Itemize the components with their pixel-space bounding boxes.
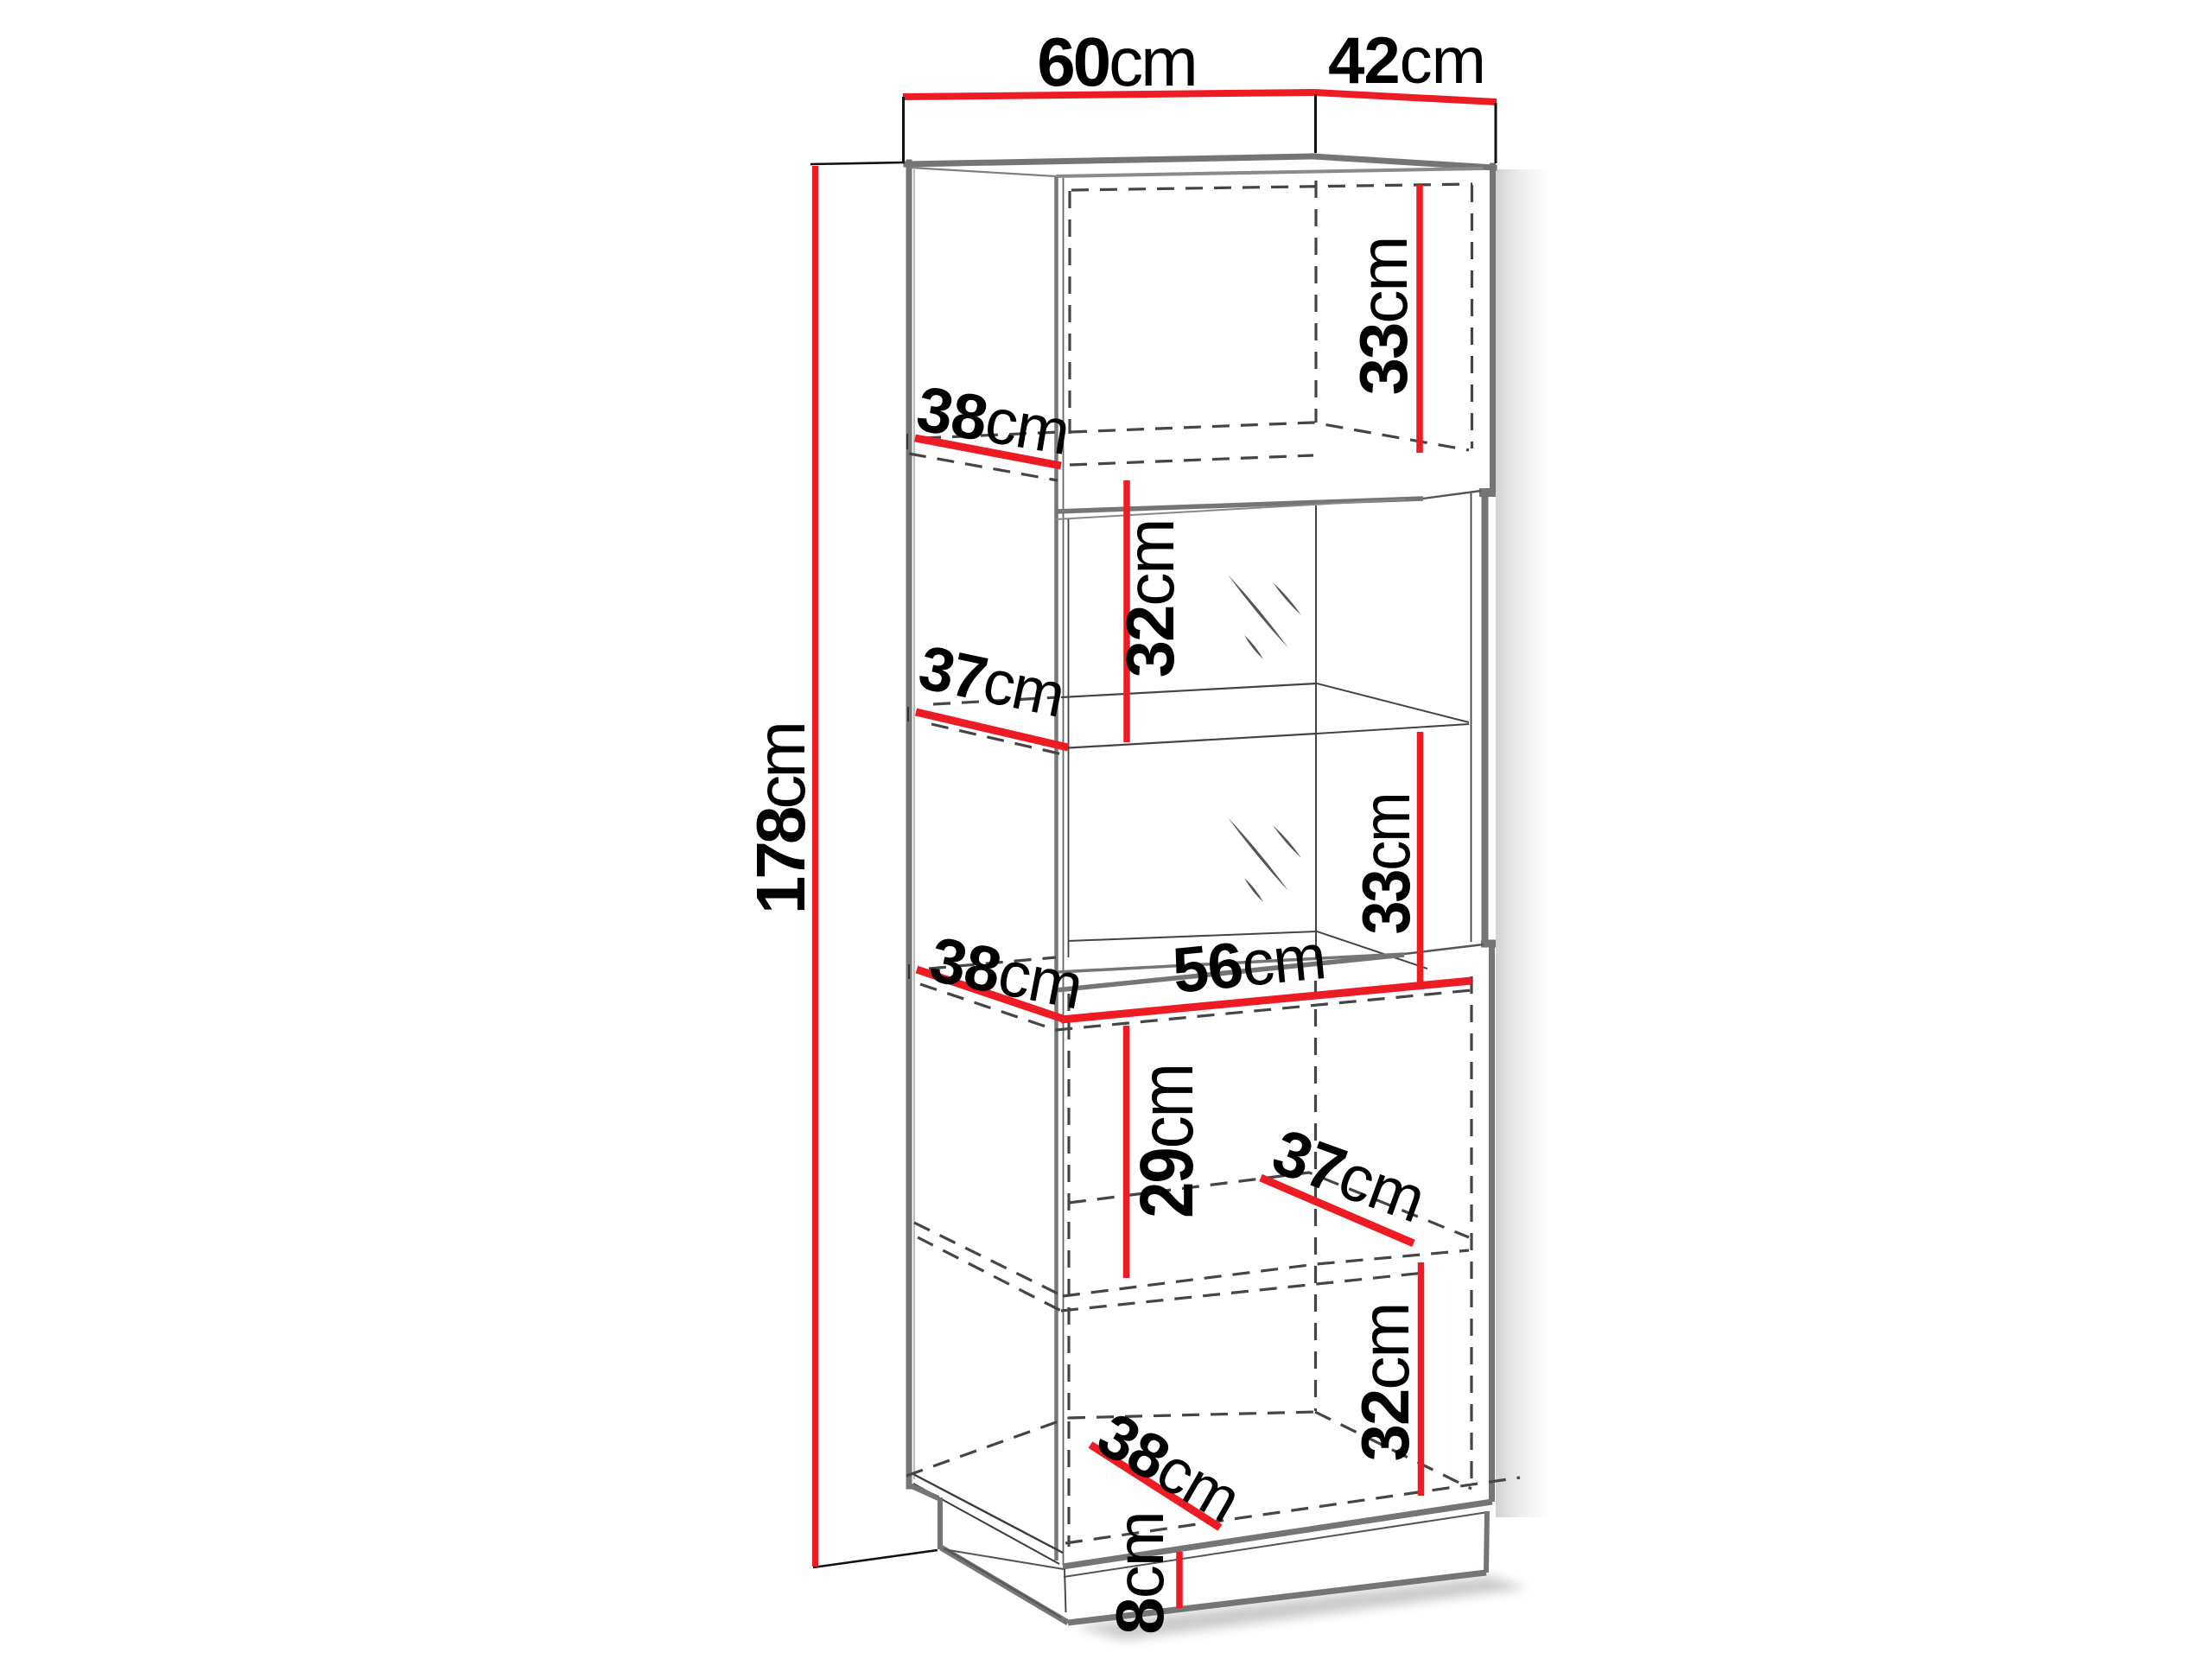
svg-text:33cm: 33cm: [1348, 793, 1424, 934]
svg-text:33cm: 33cm: [1345, 238, 1421, 396]
svg-text:8cm: 8cm: [1102, 1512, 1178, 1634]
svg-text:29cm: 29cm: [1125, 1065, 1209, 1218]
svg-text:178cm: 178cm: [742, 724, 819, 914]
svg-text:56cm: 56cm: [1169, 920, 1328, 1007]
svg-text:32cm: 32cm: [1112, 520, 1188, 678]
svg-text:32cm: 32cm: [1347, 1304, 1423, 1462]
svg-text:42cm: 42cm: [1328, 24, 1485, 98]
svg-text:60cm: 60cm: [1037, 23, 1196, 100]
